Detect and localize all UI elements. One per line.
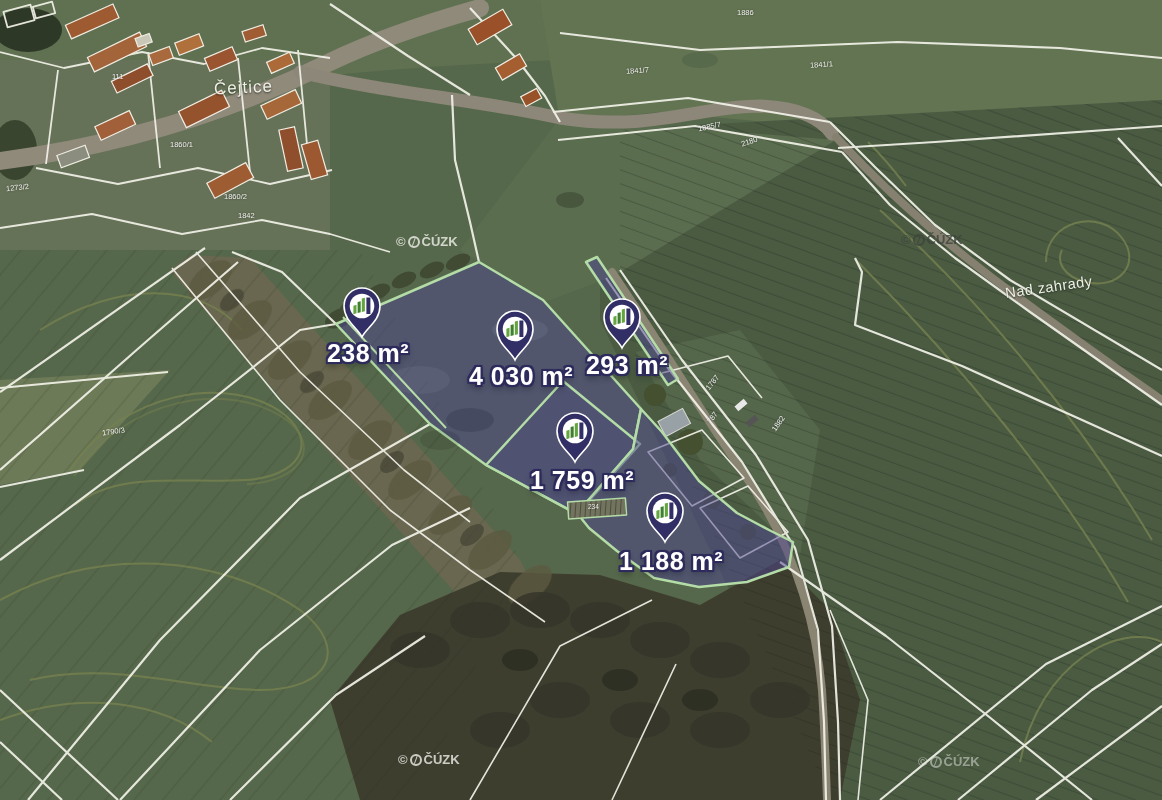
building-parcel-234 (568, 498, 627, 519)
aerial-map-image (0, 0, 1162, 800)
map-viewport[interactable]: 238 m² 4 030 m² 293 m² 1 759 m² 1 188 m²… (0, 0, 1162, 800)
